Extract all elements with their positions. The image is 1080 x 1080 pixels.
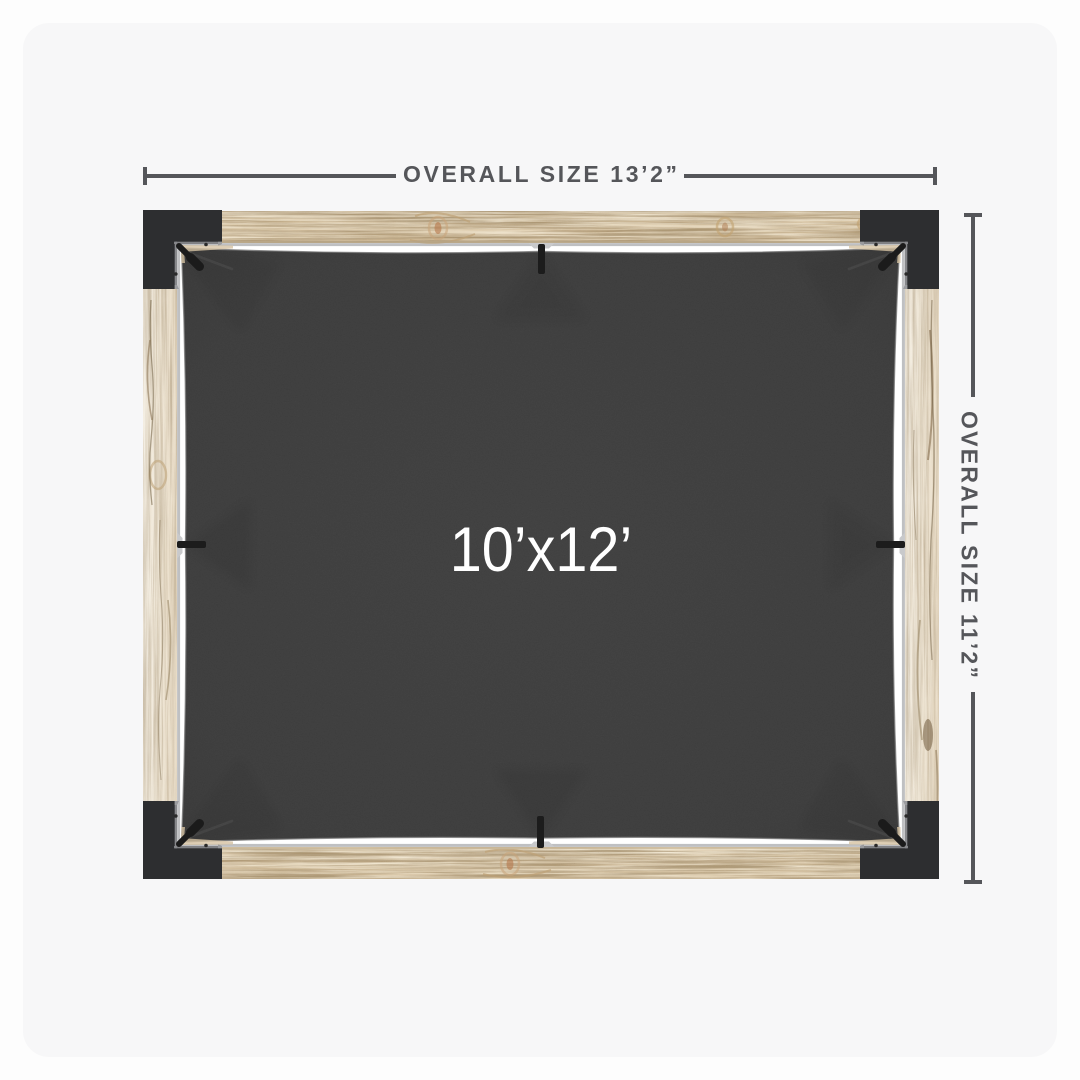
- svg-text:10’x12’: 10’x12’: [450, 515, 633, 585]
- svg-text:OVERALL SIZE 11’2”: OVERALL SIZE 11’2”: [957, 411, 983, 678]
- svg-text:OVERALL SIZE 13’2”: OVERALL SIZE 13’2”: [403, 161, 677, 187]
